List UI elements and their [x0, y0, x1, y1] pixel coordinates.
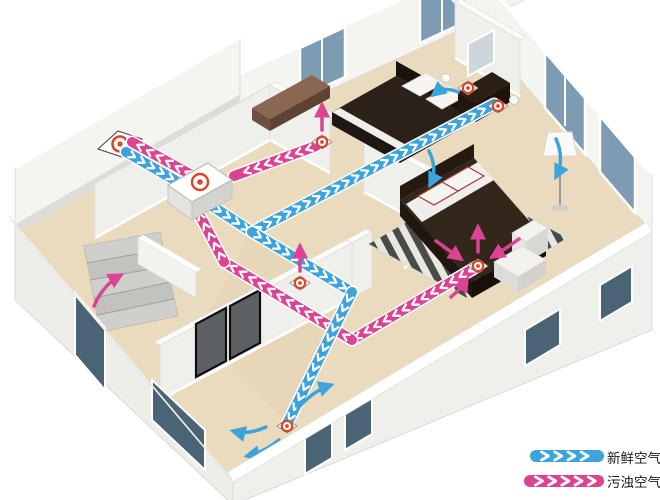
- legend-swatch-exhaust-air: [530, 477, 598, 485]
- legend-label-fresh-air: 新鲜空气: [607, 451, 660, 466]
- ventilation-diagram: 新鲜空气 污浊空气: [0, 0, 660, 500]
- legend-label-exhaust-air: 污浊空气: [607, 475, 660, 490]
- table-lamp: [510, 96, 519, 105]
- legend-swatch-fresh-air: [536, 452, 598, 460]
- isometric-house-illustration: 新鲜空气 污浊空气: [0, 0, 660, 500]
- table-lamp: [442, 74, 451, 83]
- legend: 新鲜空气 污浊空气: [530, 451, 660, 490]
